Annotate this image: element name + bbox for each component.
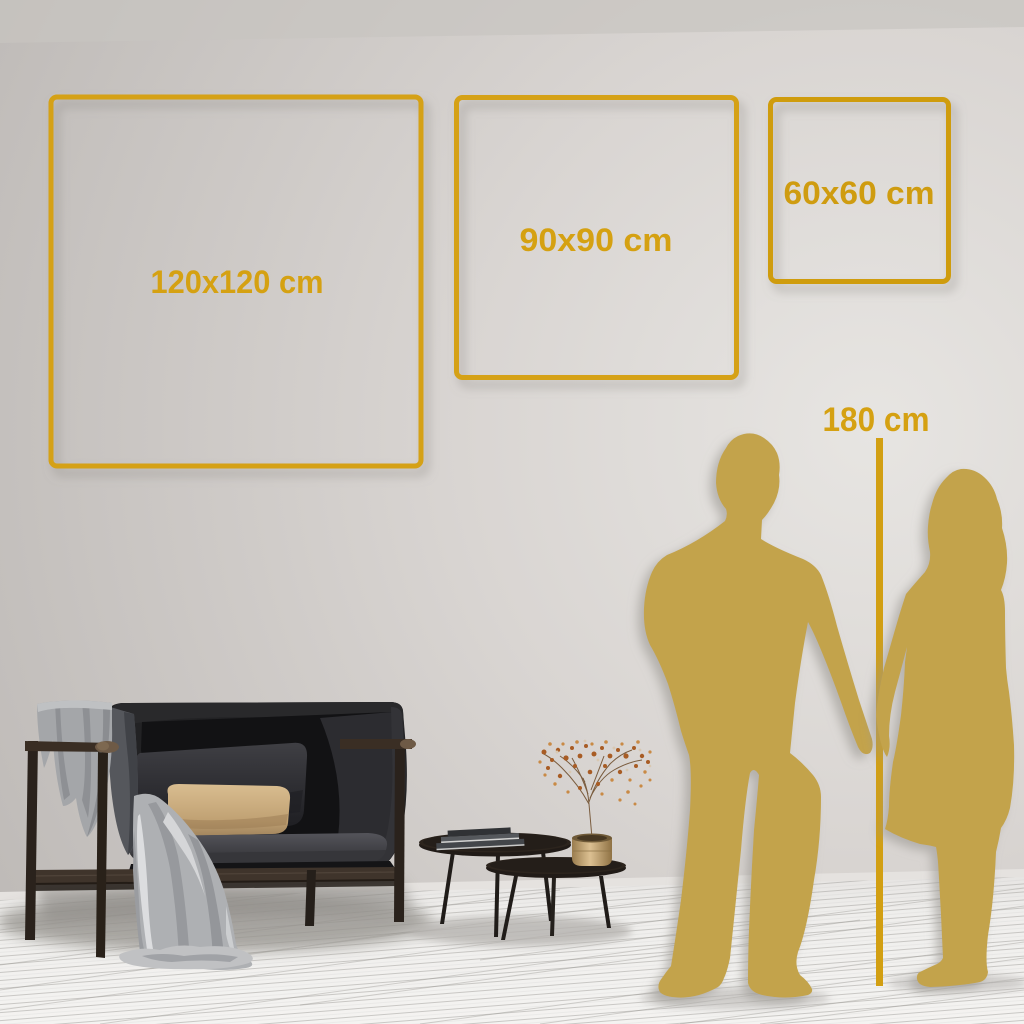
- svg-text:90x90 cm: 90x90 cm: [520, 222, 673, 258]
- svg-text:180 cm: 180 cm: [823, 401, 930, 439]
- svg-text:60x60 cm: 60x60 cm: [784, 175, 935, 211]
- svg-text:120x120 cm: 120x120 cm: [151, 264, 324, 300]
